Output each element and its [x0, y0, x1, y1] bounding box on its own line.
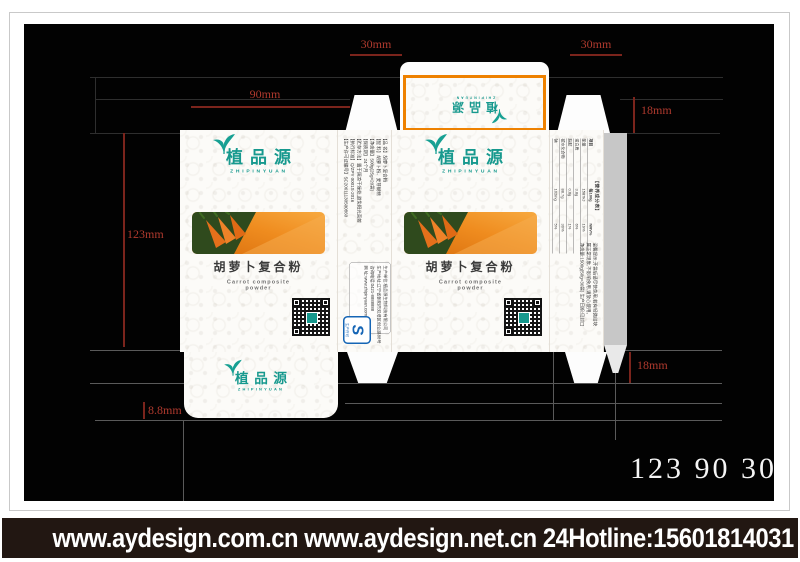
brand-name-en: ZHIPINYUAN: [187, 168, 330, 174]
dim-label-30mm-right: 30mm: [568, 37, 624, 52]
dimension-line-width: [191, 106, 350, 108]
top-lid-flap: 植品源 ZHIPINYUAN: [400, 62, 549, 133]
product-title: 胡萝卜复合粉: [180, 258, 337, 275]
product-subtitle: Carrot composite powder: [392, 274, 549, 298]
grid-line: [620, 99, 723, 100]
brand-logo: 植品源 ZHIPINYUAN: [209, 371, 313, 395]
dim-label-123mm: 123mm: [127, 227, 164, 242]
footer-contact-bar: www.aydesign.com.cn www.aydesign.net.cn …: [2, 518, 798, 558]
brand-name-en: ZHIPINYUAN: [204, 387, 318, 391]
dim-label-18mm-top: 18mm: [641, 103, 672, 118]
bottom-lid-flap: 植品源 ZHIPINYUAN: [184, 352, 338, 418]
grid-line: [95, 420, 722, 421]
carrot-product-photo: [192, 212, 325, 254]
dimension-line-glue: [143, 402, 145, 419]
qr-code: [292, 298, 330, 336]
glue-strip: [604, 133, 627, 345]
grid-line: [549, 77, 723, 78]
carrot-product-photo: [404, 212, 537, 254]
ingredients-block: 【品 名】胡萝卜复合粉 【配 料】胡萝卜粉、麦芽糊精 【净含量】500g(25g…: [340, 136, 388, 258]
brand-logo-rotated: 植品源 ZHIPINYUAN: [429, 93, 520, 114]
dim-label-18mm-bottom: 18mm: [637, 358, 668, 373]
size-summary: 123 90 30: [630, 452, 777, 486]
footer-contact-text: www.aydesign.com.cn www.aydesign.net.cn …: [53, 518, 794, 558]
qr-code: [504, 298, 542, 336]
grid-line: [553, 352, 554, 420]
nutrition-table: 【营养成分表】 项目 每100g NRV% 能量1587kJ19% 蛋白质3.8…: [552, 138, 601, 253]
sprout-leaf-icon: [211, 133, 237, 160]
brand-name-en: ZHIPINYUAN: [399, 168, 542, 174]
qs-certification-mark: S 生产许可: [343, 316, 371, 344]
qs-s-icon: S: [349, 325, 367, 336]
brand-logo: 植品源 ZHIPINYUAN: [406, 148, 536, 178]
qr-center-badge: [518, 312, 530, 324]
grid-line: [95, 77, 96, 133]
dimension-line-depth-top: [633, 97, 635, 133]
dimension-line-depth-bottom: [629, 352, 631, 383]
brand-name-en: ZHIPINYUAN: [424, 96, 524, 100]
usage-notes-block: 温馨提示:开袋后请尽快食用,若有轻微结块 属正常现象,不影响食用,请放心使用。 …: [564, 242, 598, 337]
sprout-leaf-icon: [223, 359, 244, 381]
sprout-leaf-icon: [490, 105, 508, 124]
grid-line: [95, 99, 350, 100]
dim-label-8-8mm: 8.8mm: [148, 403, 182, 418]
dimension-line-height: [123, 133, 125, 347]
sprout-leaf-icon: [423, 133, 449, 160]
lid-print-panel: 植品源 ZHIPINYUAN: [403, 75, 546, 131]
dim-label-90mm: 90mm: [237, 87, 293, 102]
grid-line: [90, 77, 400, 78]
dimension-line-top-right: [570, 54, 622, 56]
grid-line: [90, 133, 182, 134]
qr-center-badge: [306, 312, 318, 324]
grid-line: [183, 420, 184, 501]
grid-line: [90, 350, 182, 351]
grid-line: [613, 133, 720, 134]
front-panel: 植品源 ZHIPINYUAN 胡萝卜复合粉 Carrot composite p…: [180, 130, 337, 352]
product-subtitle: Carrot composite powder: [180, 274, 337, 298]
grid-line: [613, 350, 722, 351]
dimension-line-top-left: [350, 54, 402, 56]
dim-label-30mm-left: 30mm: [348, 37, 404, 52]
brand-logo: 植品源 ZHIPINYUAN: [194, 148, 324, 178]
grid-line: [345, 403, 722, 404]
back-panel: 植品源 ZHIPINYUAN 胡萝卜复合粉 Carrot composite p…: [392, 130, 549, 352]
product-title: 胡萝卜复合粉: [392, 258, 549, 275]
